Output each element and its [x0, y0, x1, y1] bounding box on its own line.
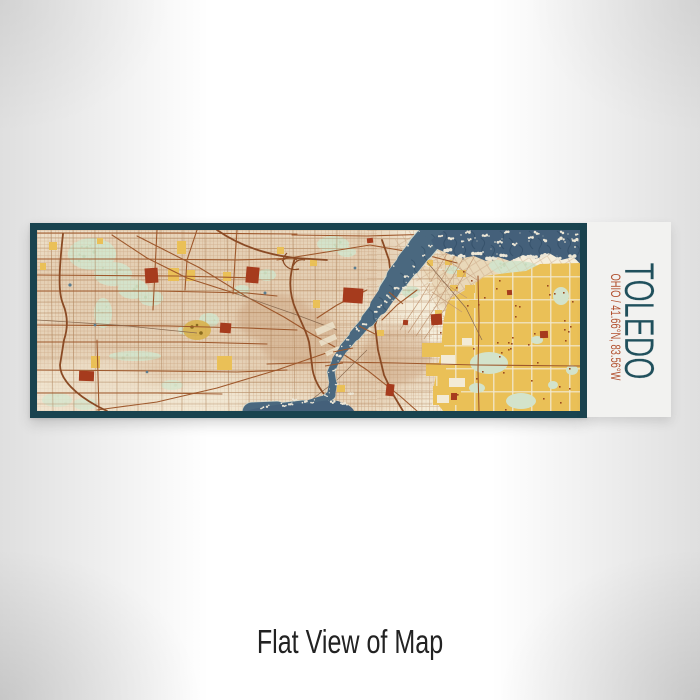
svg-text:OHIO / 41.66°N, 83.56°W: OHIO / 41.66°N, 83.56°W	[608, 273, 624, 381]
